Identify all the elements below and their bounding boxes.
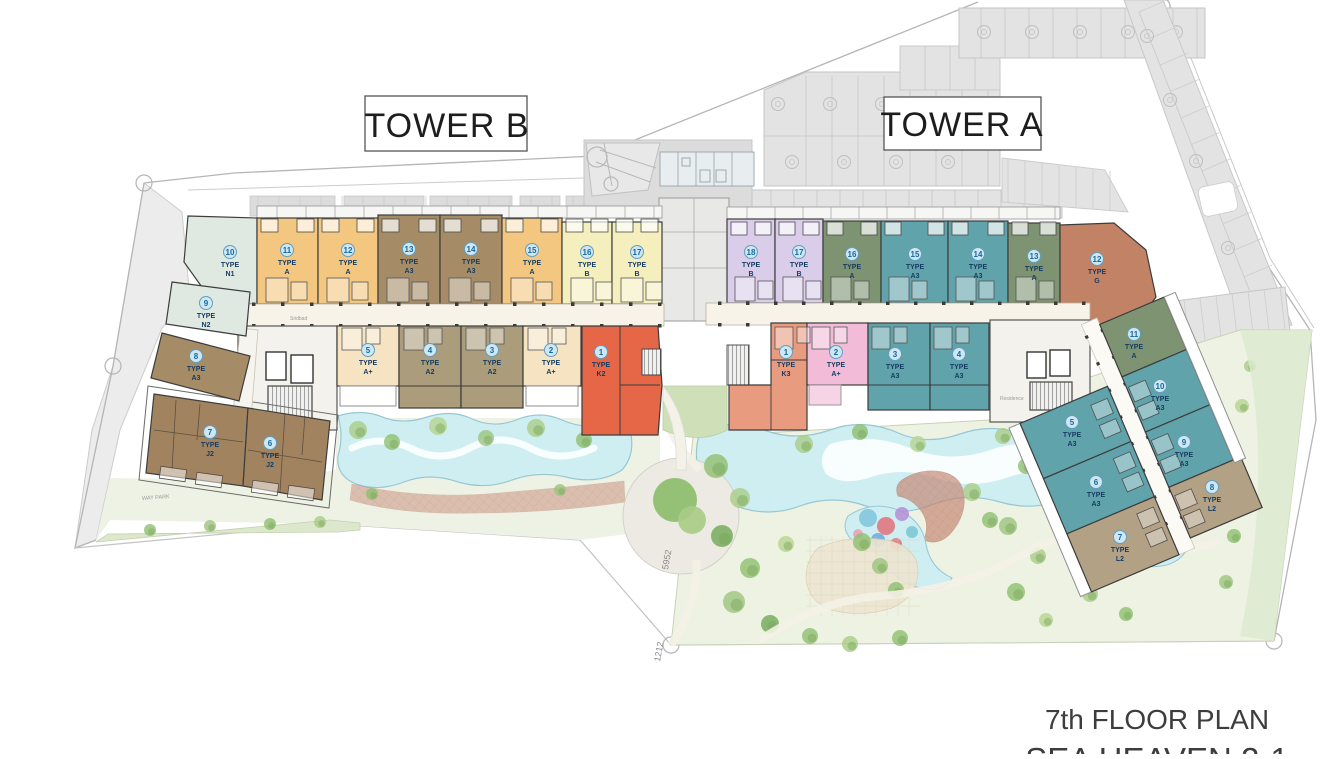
svg-text:5: 5 (1070, 418, 1075, 427)
svg-text:N1: N1 (226, 271, 235, 278)
svg-text:TYPE: TYPE (523, 260, 542, 267)
svg-text:6: 6 (268, 439, 273, 448)
svg-text:1: 1 (784, 348, 789, 357)
svg-text:8: 8 (1210, 483, 1215, 492)
svg-text:TYPE: TYPE (628, 262, 647, 269)
svg-text:TOWER B: TOWER B (364, 107, 529, 145)
svg-text:TYPE: TYPE (827, 362, 846, 369)
svg-text:17: 17 (633, 248, 642, 257)
svg-text:18: 18 (747, 248, 756, 257)
svg-text:TYPE: TYPE (1088, 269, 1107, 276)
svg-text:B: B (584, 271, 589, 278)
svg-text:A2: A2 (426, 369, 435, 376)
svg-text:TYPE: TYPE (278, 260, 297, 267)
svg-text:13: 13 (405, 245, 414, 254)
svg-text:TYPE: TYPE (969, 264, 988, 271)
svg-text:A3: A3 (192, 375, 201, 382)
svg-text:TYPE: TYPE (592, 362, 611, 369)
svg-text:TYPE: TYPE (201, 442, 220, 449)
svg-text:7th FLOOR PLAN: 7th FLOOR PLAN (1045, 704, 1269, 735)
svg-text:L2: L2 (1116, 556, 1124, 563)
svg-text:TYPE: TYPE (950, 364, 969, 371)
svg-text:A: A (1031, 275, 1036, 282)
svg-text:17: 17 (795, 248, 804, 257)
svg-text:8: 8 (194, 352, 199, 361)
svg-text:A3: A3 (974, 273, 983, 280)
svg-text:TYPE: TYPE (261, 453, 280, 460)
svg-text:TYPE: TYPE (777, 362, 796, 369)
svg-text:TYPE: TYPE (790, 262, 809, 269)
svg-text:2: 2 (549, 346, 554, 355)
svg-text:SEA HEAVEN 2-1: SEA HEAVEN 2-1 (1025, 741, 1289, 754)
svg-text:TYPE: TYPE (1063, 432, 1082, 439)
svg-text:12: 12 (344, 246, 353, 255)
svg-text:K3: K3 (782, 371, 791, 378)
svg-text:TYPE: TYPE (1025, 266, 1044, 273)
svg-text:K2: K2 (597, 371, 606, 378)
svg-text:Residence: Residence (1000, 396, 1024, 402)
svg-text:1: 1 (599, 348, 604, 357)
svg-text:G: G (1094, 278, 1100, 285)
svg-text:N2: N2 (202, 322, 211, 329)
svg-text:Sridbad: Sridbad (290, 316, 307, 322)
svg-text:7: 7 (208, 428, 213, 437)
svg-text:A3: A3 (911, 273, 920, 280)
svg-text:16: 16 (583, 248, 592, 257)
svg-text:A3: A3 (1180, 461, 1189, 468)
svg-text:14: 14 (974, 250, 983, 259)
svg-text:A: A (529, 269, 534, 276)
svg-text:A3: A3 (1068, 441, 1077, 448)
svg-text:16: 16 (848, 250, 857, 259)
svg-text:13: 13 (1030, 252, 1039, 261)
svg-text:11: 11 (283, 246, 292, 255)
svg-text:14: 14 (467, 245, 476, 254)
svg-text:A: A (849, 273, 854, 280)
svg-text:10: 10 (226, 248, 235, 257)
svg-text:A: A (1131, 353, 1136, 360)
svg-text:9: 9 (1182, 438, 1187, 447)
svg-text:TYPE: TYPE (400, 259, 419, 266)
svg-text:A3: A3 (891, 373, 900, 380)
svg-text:3: 3 (490, 346, 495, 355)
svg-text:TYPE: TYPE (221, 262, 240, 269)
svg-text:B: B (796, 271, 801, 278)
svg-text:TYPE: TYPE (421, 360, 440, 367)
svg-text:A3: A3 (955, 373, 964, 380)
svg-text:TYPE: TYPE (578, 262, 597, 269)
svg-text:A+: A+ (363, 369, 372, 376)
svg-text:TYPE: TYPE (1175, 452, 1194, 459)
svg-text:TYPE: TYPE (1125, 344, 1144, 351)
svg-text:A3: A3 (405, 268, 414, 275)
svg-text:3: 3 (893, 350, 898, 359)
svg-text:TYPE: TYPE (542, 360, 561, 367)
svg-text:L2: L2 (1208, 506, 1216, 513)
svg-text:2: 2 (834, 348, 839, 357)
svg-text:TYPE: TYPE (462, 259, 481, 266)
svg-text:TOWER A: TOWER A (880, 106, 1043, 144)
svg-text:4: 4 (428, 346, 433, 355)
svg-text:12: 12 (1093, 255, 1102, 264)
svg-text:15: 15 (911, 250, 920, 259)
svg-text:6: 6 (1094, 478, 1099, 487)
svg-text:4: 4 (957, 350, 962, 359)
svg-text:TYPE: TYPE (1111, 547, 1130, 554)
svg-text:TYPE: TYPE (886, 364, 905, 371)
svg-text:B: B (634, 271, 639, 278)
svg-text:A+: A+ (831, 371, 840, 378)
svg-text:TYPE: TYPE (1087, 492, 1106, 499)
svg-text:10: 10 (1156, 382, 1165, 391)
svg-text:TYPE: TYPE (187, 366, 206, 373)
svg-text:TYPE: TYPE (483, 360, 502, 367)
svg-text:B: B (748, 271, 753, 278)
svg-text:A3: A3 (1092, 501, 1101, 508)
svg-text:9: 9 (204, 299, 209, 308)
svg-text:TYPE: TYPE (742, 262, 761, 269)
svg-text:5: 5 (366, 346, 371, 355)
svg-text:J2: J2 (266, 462, 274, 469)
svg-text:TYPE: TYPE (906, 264, 925, 271)
svg-text:15: 15 (528, 246, 537, 255)
svg-text:A2: A2 (488, 369, 497, 376)
svg-text:TYPE: TYPE (359, 360, 378, 367)
svg-text:TYPE: TYPE (843, 264, 862, 271)
svg-text:11: 11 (1130, 330, 1139, 339)
svg-text:TYPE: TYPE (1151, 396, 1170, 403)
svg-text:TYPE: TYPE (197, 313, 216, 320)
svg-text:A+: A+ (546, 369, 555, 376)
svg-text:A: A (345, 269, 350, 276)
svg-text:TYPE: TYPE (339, 260, 358, 267)
svg-text:7: 7 (1118, 533, 1123, 542)
svg-text:A3: A3 (467, 268, 476, 275)
svg-text:A: A (284, 269, 289, 276)
svg-text:J2: J2 (206, 451, 214, 458)
svg-text:A3: A3 (1156, 405, 1165, 412)
svg-text:TYPE: TYPE (1203, 497, 1222, 504)
